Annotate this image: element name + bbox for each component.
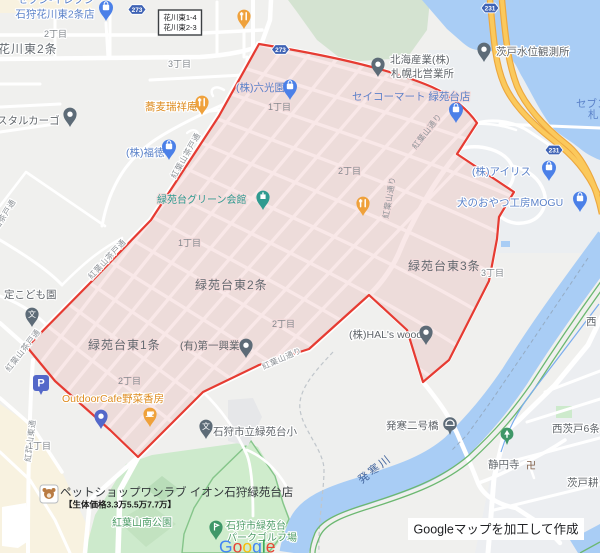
svg-text:スタルカーゴ: スタルカーゴ [0, 114, 60, 127]
svg-text:(株)HAL's wood: (株)HAL's wood [349, 328, 422, 341]
svg-text:緑苑台グリーン会館: 緑苑台グリーン会館 [157, 193, 247, 206]
svg-text:Googleマップを加工して作成: Googleマップを加工して作成 [414, 523, 579, 537]
svg-text:紅葉山南公園: 紅葉山南公園 [112, 516, 172, 529]
svg-text:【生体価格3.3万5.5万7.7万】: 【生体価格3.3万5.5万7.7万】 [64, 500, 176, 510]
svg-text:273: 273 [132, 7, 143, 14]
svg-text:Google: Google [219, 537, 275, 553]
svg-text:セブン-イレブン: セブン-イレブン [18, 0, 95, 6]
svg-text:発寒二号橋: 発寒二号橋 [386, 419, 439, 432]
svg-text:OutdoorCafe野菜香房: OutdoorCafe野菜香房 [62, 392, 164, 405]
svg-text:北海産業(株): 北海産業(株) [390, 53, 450, 66]
svg-text:緑苑台東2条: 緑苑台東2条 [195, 277, 268, 292]
svg-text:3丁目: 3丁目 [481, 268, 504, 278]
svg-text:(株)六光園: (株)六光園 [236, 81, 285, 94]
svg-text:石狩市立緑苑台小: 石狩市立緑苑台小 [213, 425, 297, 438]
svg-text:(株)福徳: (株)福徳 [126, 146, 165, 159]
svg-text:1丁目: 1丁目 [178, 238, 201, 248]
svg-text:卍: 卍 [526, 460, 536, 472]
svg-text:緑苑台東1条: 緑苑台東1条 [88, 337, 161, 352]
svg-text:1丁目: 1丁目 [268, 102, 291, 112]
svg-text:西: 西 [586, 316, 597, 328]
svg-text:(株)アイリス: (株)アイリス [472, 165, 531, 178]
svg-text:西茨戸6条: 西茨戸6条 [552, 422, 600, 435]
svg-text:蕎麦瑞祥庵: 蕎麦瑞祥庵 [145, 100, 198, 113]
svg-text:札幌北営業所: 札幌北営業所 [391, 67, 454, 80]
svg-text:231: 231 [485, 5, 496, 12]
svg-text:緑苑台東3条: 緑苑台東3条 [408, 258, 481, 273]
svg-text:犬のおやつ工房MOGU: 犬のおやつ工房MOGU [457, 196, 563, 209]
svg-text:花川東2条: 花川東2条 [0, 41, 58, 56]
svg-text:2丁目: 2丁目 [338, 166, 361, 176]
svg-text:P: P [37, 378, 44, 390]
svg-text:花川東2-3: 花川東2-3 [163, 22, 196, 32]
svg-text:231: 231 [549, 147, 560, 154]
svg-text:1丁目: 1丁目 [28, 441, 51, 451]
svg-text:セイコーマート 緑苑台店: セイコーマート 緑苑台店 [352, 90, 470, 103]
svg-text:3丁目: 3丁目 [168, 59, 191, 69]
svg-text:花川東1-4: 花川東1-4 [163, 12, 196, 22]
svg-text:(有)第一興業: (有)第一興業 [180, 339, 240, 352]
svg-text:石狩市緑苑台: 石狩市緑苑台 [226, 519, 286, 532]
svg-text:定こども園: 定こども園 [4, 288, 57, 301]
svg-text:茨戸水位観測所: 茨戸水位観測所 [496, 45, 570, 58]
svg-text:273: 273 [275, 47, 286, 54]
svg-text:2丁目: 2丁目 [44, 29, 67, 39]
svg-text:ペットショップワンラブ イオン石狩緑苑台店: ペットショップワンラブ イオン石狩緑苑台店 [60, 485, 293, 499]
svg-text:静円寺: 静円寺 [488, 458, 520, 471]
svg-text:石狩花川東2条店: 石狩花川東2条店 [15, 8, 94, 21]
svg-text:札: 札 [588, 108, 599, 121]
svg-text:2丁目: 2丁目 [118, 376, 141, 386]
svg-text:2丁目: 2丁目 [272, 319, 295, 329]
svg-text:茨戸耕: 茨戸耕 [567, 476, 599, 489]
